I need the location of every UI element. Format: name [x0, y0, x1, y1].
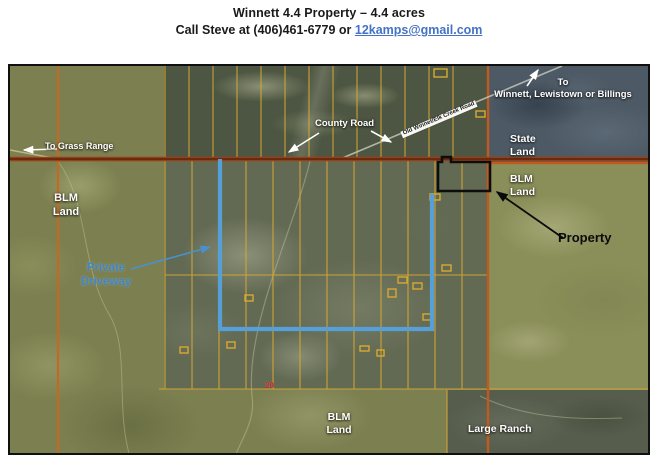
parcel-grid — [159, 66, 650, 455]
driveway-arrow — [131, 247, 210, 269]
state-land-label: StateLand — [510, 133, 536, 159]
page: Winnett 4.4 Property – 4.4 acres Call St… — [0, 0, 658, 468]
large-ranch-label: Large Ranch — [468, 423, 532, 436]
contact-text: Call Steve at (406)461-6779 or — [176, 23, 355, 37]
to-winnett-label: ToWinnett, Lewistown or Billings — [468, 77, 650, 101]
contact-email-link[interactable]: 12kamps@gmail.com — [355, 23, 483, 37]
county-road-arrow-left — [289, 133, 319, 152]
route-20-marker: 20 — [265, 381, 274, 391]
contact-line: Call Steve at (406)461-6779 or 12kamps@g… — [0, 23, 658, 37]
property-label: Property — [558, 230, 611, 246]
private-driveway-label: PrivateDriveway — [70, 261, 142, 290]
page-title: Winnett 4.4 Property – 4.4 acres — [0, 6, 658, 20]
county-road-label: County Road — [315, 118, 374, 130]
map-image: Old Winnet/Elk Creek Road To Grass Range… — [8, 64, 650, 455]
to-grass-range-label: To Grass Range — [45, 141, 113, 152]
property-outline — [438, 157, 490, 191]
blm-land-bottom-label: BLMLand — [318, 411, 360, 437]
blm-land-right-label: BLMLand — [510, 173, 535, 199]
private-driveway-path — [220, 159, 432, 329]
blm-land-left-label: BLMLand — [46, 192, 86, 220]
